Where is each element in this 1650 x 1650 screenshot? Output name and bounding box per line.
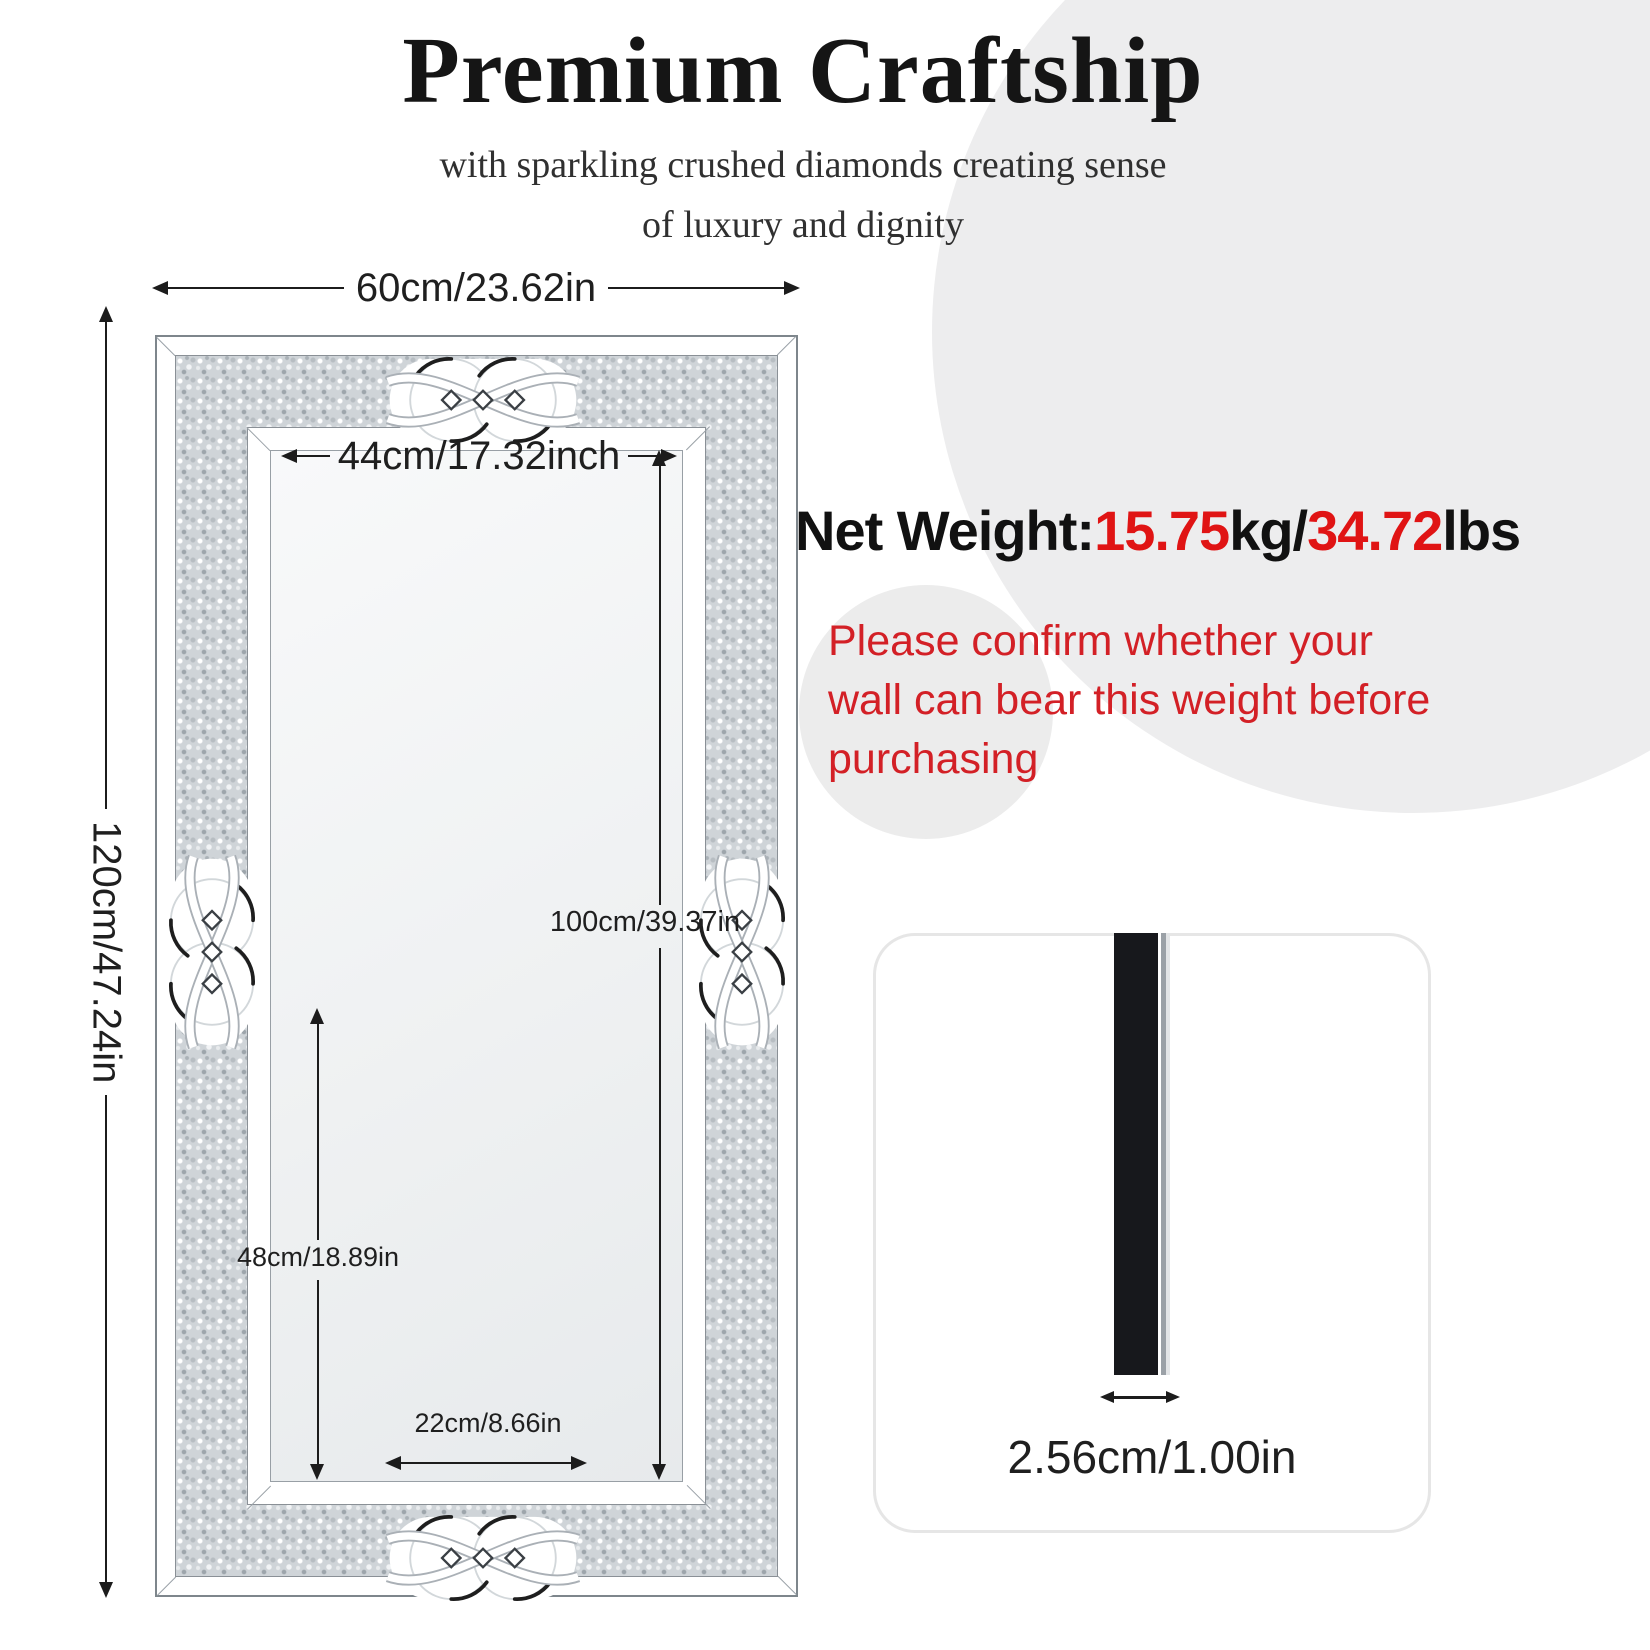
dim-line — [401, 1462, 571, 1464]
dim-bottom-gap-width — [385, 1448, 587, 1478]
page-title: Premium Craftship — [0, 22, 1628, 121]
inner-width-label: 44cm/17.32inch — [330, 434, 628, 479]
net-weight-lbs-value: 34.72 — [1307, 499, 1442, 562]
dim-line — [168, 287, 344, 289]
mitre-seam — [157, 1577, 176, 1596]
dim-line — [1114, 1396, 1166, 1399]
subtitle-line-1: with sparkling crushed diamonds creating… — [0, 135, 1628, 195]
dim-line — [608, 287, 784, 289]
bottom-gap-width-label: 22cm/8.66in — [388, 1408, 588, 1439]
mirror-glass — [270, 450, 683, 1482]
mirror-side-profile — [1114, 933, 1170, 1375]
arrow-down-icon — [99, 1582, 113, 1598]
header: Premium Craftship with sparkling crushed… — [0, 22, 1628, 255]
net-weight-label: Net Weight: — [795, 499, 1094, 562]
arrow-left-icon — [281, 449, 297, 463]
mitre-seam — [777, 336, 796, 355]
arrow-right-icon — [571, 1456, 587, 1470]
mitre-seam — [778, 1576, 797, 1595]
weight-warning: Please confirm whether your wall can bea… — [828, 612, 1430, 789]
product-infographic: Premium Craftship with sparkling crushed… — [0, 0, 1650, 1650]
subtitle-line-2: of luxury and dignity — [0, 195, 1628, 255]
warning-line-3: purchasing — [828, 730, 1430, 789]
net-weight-kg-value: 15.75 — [1094, 499, 1229, 562]
celtic-knot-right-icon — [686, 849, 798, 1055]
arrow-right-icon — [784, 281, 800, 295]
arrow-right-icon — [1166, 1391, 1180, 1403]
arrow-down-icon — [310, 1464, 324, 1480]
net-weight-kg-unit: kg/ — [1229, 499, 1307, 562]
dim-thickness — [1100, 1391, 1180, 1403]
mitre-seam — [156, 337, 175, 356]
warning-line-1: Please confirm whether your — [828, 612, 1430, 671]
thickness-label: 2.56cm/1.00in — [876, 1430, 1428, 1484]
celtic-knot-left-icon — [156, 849, 268, 1055]
side-view-card: 2.56cm/1.00in — [873, 933, 1431, 1533]
overall-width-label: 60cm/23.62in — [344, 266, 608, 311]
arrow-up-icon — [99, 306, 113, 322]
dim-line — [105, 1095, 107, 1582]
celtic-knot-bottom-icon — [380, 1502, 586, 1614]
dim-line — [297, 455, 330, 457]
warning-line-2: wall can bear this weight before — [828, 671, 1430, 730]
inner-height-label: 100cm/39.37in — [545, 906, 745, 939]
dim-line — [659, 948, 661, 1464]
arrow-left-icon — [1100, 1391, 1114, 1403]
arrow-left-icon — [152, 281, 168, 295]
arrow-down-icon — [652, 1464, 666, 1480]
lower-section-height-label: 48cm/18.89in — [233, 1242, 403, 1273]
dim-line — [317, 1022, 319, 1240]
dim-overall-width: 60cm/23.62in — [152, 266, 800, 310]
dim-inner-width: 44cm/17.32inch — [281, 434, 677, 478]
net-weight-line: Net Weight:15.75kg/34.72lbs — [795, 498, 1520, 563]
arrow-left-icon — [385, 1456, 401, 1470]
net-weight-lbs-unit: lbs — [1442, 499, 1520, 562]
overall-height-label: 120cm/47.24in — [84, 809, 129, 1095]
subtitle: with sparkling crushed diamonds creating… — [0, 135, 1628, 255]
dim-line — [105, 322, 107, 809]
dim-line — [317, 1280, 319, 1464]
dim-overall-height: 120cm/47.24in — [84, 306, 128, 1598]
dim-line — [659, 464, 661, 905]
